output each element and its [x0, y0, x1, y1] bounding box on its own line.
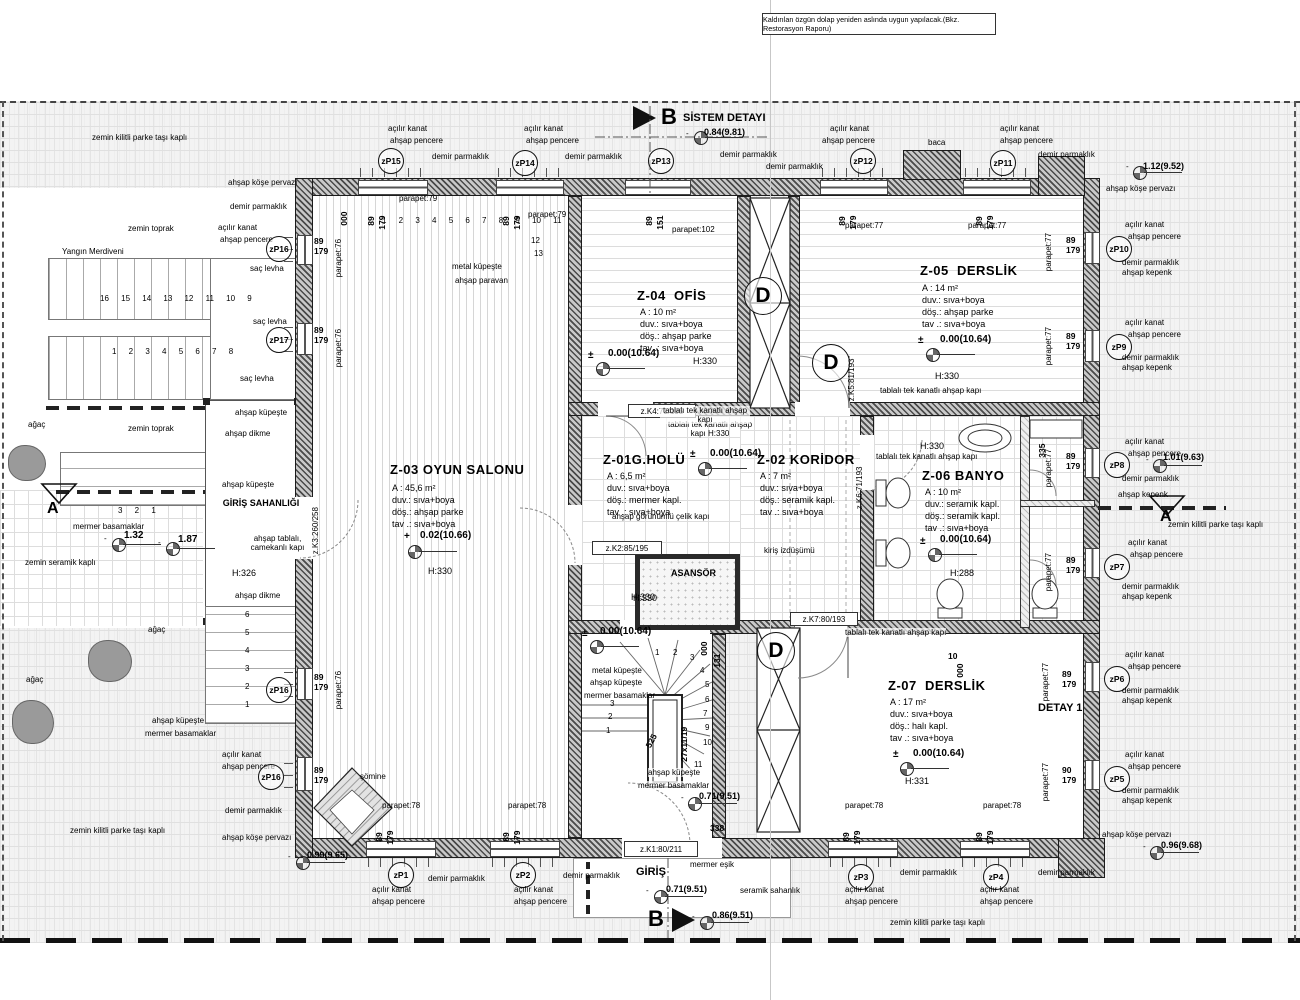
stair-num: 9: [705, 723, 709, 732]
minus-sign: -: [646, 886, 649, 895]
revision-note: Kaldırılan özgün dolap yeniden aslında u…: [762, 13, 996, 35]
window-tag-zP14: zP14: [512, 150, 538, 176]
label-somine: şömine: [360, 772, 386, 781]
stair-level: 0.00(10.64): [600, 626, 651, 638]
dim-parapet78: parapet:78: [983, 801, 1021, 810]
label-ahsap-dikme: ahşap dikme: [225, 429, 270, 438]
label-acilir-kanat: açılır kanat: [222, 750, 261, 759]
window-zP17: [297, 323, 313, 355]
tree-blob: [88, 640, 132, 682]
room-area: A : 45,6 m²: [392, 482, 464, 494]
room-z02-id: Z-02: [757, 452, 786, 467]
label-yangin-merdiveni: Yangın Merdiveni: [62, 247, 124, 256]
room-area: A : 7 m²: [760, 470, 835, 482]
floor-plan-canvas: Kaldırılan özgün dolap yeniden aslında u…: [0, 0, 1300, 1000]
label-demir-parmaklik: demir parmaklık: [1122, 582, 1179, 591]
label-tablali-kapi: tablalı tek kanatlı ahşap kapı: [845, 628, 946, 637]
label-ahsap-kepenk: ahşap kepenk: [1122, 696, 1172, 705]
dim-parapet77: parapet:77: [1041, 663, 1050, 701]
tag-text: zP14: [515, 158, 534, 168]
stair-side-num: 3: [610, 699, 614, 708]
label-ahsap-pencere: ahşap pencere: [1128, 330, 1181, 339]
room-z05-name: DERSLİK: [957, 263, 1018, 278]
tag-text: zP3: [854, 872, 869, 882]
dim-parapet78: parapet:78: [508, 801, 546, 810]
window-zP16-c: [297, 757, 313, 791]
room-area: A : 14 m²: [922, 282, 994, 294]
window-tag-zP12: zP12: [850, 148, 876, 174]
window-zP10: [1085, 232, 1100, 264]
room-z01-name: G.HOLÜ: [632, 452, 686, 467]
room-z06-height: H:288: [950, 568, 974, 578]
room-z04-id: Z-04: [637, 288, 666, 303]
room-z06-level: 0.00(10.64): [940, 534, 991, 546]
minus-sign: -: [288, 852, 291, 861]
detail-1-label: DETAY 1: [1038, 702, 1082, 715]
window-tag-zP17: zP17: [266, 327, 292, 353]
label-demir-parmaklik: demir parmaklık: [230, 202, 287, 211]
room-z03-height: H:330: [428, 566, 452, 576]
room-z04-level: 0.00(10.64): [608, 348, 659, 360]
label-acilir-kanat: açılır kanat: [830, 124, 869, 133]
tag-text: zP17: [269, 335, 288, 345]
tag-text: zP8: [1110, 460, 1125, 470]
room-z02-name: KORİDOR: [790, 452, 855, 467]
minus-sign: -: [692, 912, 695, 921]
dim-179: 179: [1062, 776, 1076, 786]
tag-text: zP4: [989, 872, 1004, 882]
door-text: z.K1:80/211: [640, 845, 682, 854]
window-tag-zP16: zP16: [266, 677, 292, 703]
label-mermer-basamaklar: mermer basamaklar: [638, 781, 709, 790]
window-zP1: [366, 841, 436, 857]
label-acilir-kanat: açılır kanat: [218, 223, 257, 232]
fire-escape-numbers-top: 16 15 14 13 12 11 10 9: [100, 294, 240, 303]
tag-text: zP7: [1110, 562, 1125, 572]
label-ahsap-pencere: ahşap pencere: [390, 136, 443, 145]
room-z05-height: H:330: [935, 371, 959, 381]
stair-num: 1: [655, 648, 659, 657]
label-ahsap-pencere: ahşap pencere: [1130, 550, 1183, 559]
dim-parapet79: parapet:79: [399, 194, 437, 203]
room-z07-height: H:331: [905, 776, 929, 786]
label-demir-parmaklik: demir parmaklık: [225, 806, 282, 815]
label-demir-parmaklik: demir parmaklık: [1122, 686, 1179, 695]
level-symbol: [590, 640, 604, 654]
window-zP11: [963, 180, 1031, 195]
room-z01-id: Z-01: [603, 452, 632, 467]
z03-num-13: 13: [534, 249, 543, 258]
level-071-stair: 0.71(9.51): [699, 791, 740, 801]
label-acilir-kanat: açılır kanat: [524, 124, 563, 133]
dim-parapet76: parapet:76: [334, 329, 343, 367]
stair-num: 6: [705, 695, 709, 704]
room-z05-id: Z-05: [920, 263, 949, 278]
dim-parapet78: parapet:78: [845, 801, 883, 810]
dim-parapet77: parapet:77: [1044, 233, 1053, 271]
window-tag-zP13: zP13: [648, 148, 674, 174]
label-ahsap-pencere: ahşap pencere: [1128, 232, 1181, 241]
level-101: 1.01(9.63): [1163, 452, 1204, 462]
label-agac: ağaç: [26, 675, 43, 684]
room-duv: duv.: sıva+boya: [392, 494, 464, 506]
dim-179: 179: [1066, 462, 1080, 472]
tag-text: zP16: [269, 685, 288, 695]
window-zP9: [1085, 330, 1100, 362]
window-zP7: [1085, 548, 1100, 578]
label-metal-kupeste: metal küpeşte: [452, 262, 502, 271]
fire-escape-numbers-bottom: 1 2 3 4 5 6 7 8: [112, 347, 240, 356]
fire-escape-upper-flight: [48, 258, 212, 320]
boundary-bottom-dashed: [0, 938, 1300, 943]
window-zP8: [1085, 448, 1100, 478]
room-tav: tav .: sıva+boya: [392, 518, 464, 530]
dim-parapet102: parapet:102: [672, 225, 715, 234]
dim-parapet77: parapet:77: [845, 221, 883, 230]
tag-text: zP16: [269, 244, 288, 254]
dim-338: 338: [710, 824, 724, 834]
room-z06-name: BANYO: [955, 468, 1004, 483]
dim-89: 89: [502, 832, 512, 841]
level-096: 0.96(9.68): [1161, 840, 1202, 850]
label-agac: ağaç: [148, 625, 165, 634]
window-tag-zP11: zP11: [990, 150, 1016, 176]
level-symbol: [408, 545, 422, 559]
label-zemin-toprak: zemin toprak: [128, 224, 174, 233]
label-seramik-sahanlik: seramik sahanlık: [740, 886, 800, 895]
level-symbol: [900, 762, 914, 776]
tag-text: zP10: [1109, 244, 1128, 254]
room-area: A : 10 m²: [925, 486, 1000, 498]
label-acilir-kanat: açılır kanat: [845, 885, 884, 894]
dim-335: 335: [1038, 444, 1048, 458]
dim-179: 179: [314, 247, 328, 257]
level-084: 0.84(9.81): [704, 127, 745, 137]
label-zemin-seramik: zemin seramik kaplı: [25, 558, 96, 567]
section-b-top-label: B: [661, 104, 677, 129]
label-tablali-kapi: tablalı tek kanatlı ahşap kapı: [880, 386, 981, 395]
dim-89: 89: [375, 832, 385, 841]
dim-179: 179: [1066, 566, 1080, 576]
label-ahsap-pencere: ahşap pencere: [372, 897, 425, 906]
tag-text: zP13: [651, 156, 670, 166]
label-metal-kupeste: metal küpeşte: [592, 666, 642, 675]
tag-text: zP15: [381, 156, 400, 166]
room-tav: tav .: sıva+boya: [922, 318, 994, 330]
dim-179: 179: [513, 831, 523, 845]
door-text: z.K7:80/193: [803, 615, 846, 624]
room-z04-name: OFİS: [674, 288, 706, 303]
ext-stair-num: 2: [245, 682, 249, 691]
room-z03-info: A : 45,6 m² duv.: sıva+boya döş.: ahşap …: [392, 482, 464, 531]
stair-num: 5: [705, 680, 709, 689]
room-z07-level: 0.00(10.64): [913, 748, 964, 760]
label-ahsap-kepenk: ahşap kepenk: [1118, 490, 1168, 499]
level-symbol: [596, 362, 610, 376]
label-tablali-kapi: tablalı tek kanatlı ahşap kapı: [876, 452, 977, 461]
label-agac: ağaç: [28, 420, 45, 429]
label-acilir-kanat: açılır kanat: [1000, 124, 1039, 133]
label-acilir-kanat: açılır kanat: [1125, 220, 1164, 229]
door-label-k2: z.K2:85/195: [592, 541, 662, 555]
label-kose-pervazi: ahşap köşe pervazı: [1102, 830, 1171, 839]
room-tav: tav .: sıva+boya: [760, 506, 835, 518]
dim-h330: H:330: [631, 592, 655, 602]
tag-text: zP1: [394, 870, 409, 880]
door-label-k6: z.K6:71/193: [855, 466, 864, 509]
label-tablali-kapi-top: tablalı tek kanatlı ahşap kapı: [660, 406, 750, 424]
ext-stair-num: 5: [245, 628, 249, 637]
window-tag-zP16: zP16: [258, 764, 284, 790]
tag-text: zP16: [261, 772, 280, 782]
tag-text: zP12: [853, 156, 872, 166]
label-acilir-kanat: açılır kanat: [1125, 750, 1164, 759]
label-kose-pervazi: ahşap köşe pervazı: [228, 178, 297, 187]
level-112: 1.12(9.52): [1143, 161, 1184, 171]
room-duv: duv.: sıva+boya: [640, 318, 712, 330]
label-ahsap-kupeste: ahşap küpeşte: [152, 716, 204, 725]
dim-179: 179: [1062, 680, 1076, 690]
tag-text: zP5: [1110, 774, 1125, 784]
room-duv: duv.: sıva+boya: [607, 482, 682, 494]
dim-parapet76: parapet:76: [334, 239, 343, 277]
room-z02-info: A : 7 m² duv.: sıva+boya döş.: seramik k…: [760, 470, 835, 519]
level-sign: ±: [918, 335, 924, 347]
door-gap-k2: [568, 505, 582, 565]
minus-sign: -: [686, 129, 689, 138]
level-132: 1.32: [124, 530, 143, 542]
dim-179: 179: [314, 683, 328, 693]
label-ahsap-kepenk: ahşap kepenk: [1122, 268, 1172, 277]
label-ahsap-pencere: ahşap pencere: [822, 136, 875, 145]
z03-num-12: 12: [531, 236, 540, 245]
dim-parapet77: parapet:77: [1044, 553, 1053, 591]
label-mermer-basamaklar: mermer basamaklar: [145, 729, 216, 738]
label-acilir-kanat: açılır kanat: [1125, 650, 1164, 659]
minus-sign: -: [104, 534, 107, 543]
wall-shaft-east: [788, 196, 800, 412]
boundary-right-dashed: [1294, 101, 1296, 941]
porch-step-numbers: 3 2 1: [118, 506, 162, 515]
label-kose-pervazi: ahşap köşe pervazı: [222, 833, 291, 842]
dim-151: 151: [656, 216, 666, 230]
dim-h330: H:330: [920, 441, 944, 451]
dim-000: 000: [956, 664, 966, 678]
dim-10: 10: [948, 652, 957, 662]
label-demir-parmaklik: demir parmaklık: [563, 871, 620, 880]
dim-179: 179: [1066, 246, 1080, 256]
label-ahsap-kepenk: ahşap kepenk: [1122, 363, 1172, 372]
dim-step: 27x11/19: [680, 727, 690, 762]
room-z03-name: OYUN SALONU: [423, 462, 525, 477]
wall-right: [1083, 178, 1100, 858]
label-zemin-kilitli: zemin kilitli parke taşı kaplı: [92, 133, 187, 142]
room-duv: duv.: seramik kapl.: [925, 498, 1000, 510]
stair-side-num: 1: [606, 726, 610, 735]
tag-text: zP6: [1110, 674, 1125, 684]
label-kose-pervazi: ahşap köşe pervazı: [1106, 184, 1175, 193]
room-duv: duv.: sıva+boya: [760, 482, 835, 494]
minus-sign: -: [681, 793, 684, 802]
label-demir-parmaklik: demir parmaklık: [766, 162, 823, 171]
label-ahsap-pencere: ahşap pencere: [1128, 762, 1181, 771]
label-zemin-kilitli: zemin kilitli parke taşı kaplı: [70, 826, 165, 835]
room-z07-id: Z-07: [888, 678, 917, 693]
door-label-k7: z.K7:80/193: [790, 612, 858, 626]
label-demir-parmaklik: demir parmaklık: [720, 150, 777, 159]
label-demir-parmaklik: demir parmaklık: [565, 152, 622, 161]
boundary-left-dashed: [2, 101, 4, 941]
label-acilir-kanat: açılır kanat: [1128, 538, 1167, 547]
level-sign: ±: [690, 449, 696, 461]
level-099: 0.99(9.65): [307, 850, 348, 860]
label-zemin-kilitli: zemin kilitli parke taşı kaplı: [890, 918, 985, 927]
shaft-symbol-d: D: [812, 344, 850, 382]
ext-stair-num: 6: [245, 610, 249, 619]
dim-parapet78: parapet:78: [382, 801, 420, 810]
level-symbol: [928, 548, 942, 562]
section-a-left-label: A: [47, 500, 59, 518]
minus-sign: -: [1126, 162, 1129, 171]
banyo-partition-h: [1020, 500, 1095, 507]
stair-num: 10: [703, 738, 712, 747]
shaft-symbol-d: D: [757, 632, 795, 670]
dim-179: 179: [386, 831, 396, 845]
porch-post: [203, 398, 210, 405]
room-z01-level: 0.00(10.64): [710, 448, 761, 460]
chimney: [903, 150, 961, 180]
label-acilir-kanat: açılır kanat: [372, 885, 411, 894]
tag-text: zP9: [1112, 342, 1127, 352]
label-ahsap-dikme: ahşap dikme: [235, 591, 280, 600]
dim-parapet77: parapet:77: [1044, 327, 1053, 365]
level-sign: ±: [893, 749, 899, 761]
window-zP14: [496, 180, 564, 195]
system-detail-label: SİSTEM DETAYI: [683, 112, 766, 125]
room-duv: duv.: sıva+boya: [890, 708, 953, 720]
label-demir-parmaklik: demir parmaklık: [1122, 786, 1179, 795]
window-zP3: [828, 841, 898, 857]
tree-blob: [12, 700, 54, 744]
label-text: tablalı tek kanatlı ahşap kapı: [663, 406, 747, 424]
dim-131: 131: [713, 654, 723, 668]
minus-sign: -: [1143, 842, 1146, 851]
label-demir-parmaklik: demir parmaklık: [1122, 474, 1179, 483]
revision-note-text: Kaldırılan özgün dolap yeniden aslında u…: [763, 15, 995, 33]
label-kiris-izdusumu: kiriş izdüşümü: [764, 546, 815, 555]
room-dos: döş.: seramik kapl.: [925, 510, 1000, 522]
room-z03-level: 0.02(10.66): [420, 530, 471, 542]
room-tav: tav .: sıva+boya: [925, 522, 1000, 534]
door-gap-k5: [795, 402, 850, 416]
dim-parapet76: parapet:76: [334, 671, 343, 709]
section-b-bottom-label: B: [648, 906, 664, 931]
entrance-label: GİRİŞ: [636, 866, 666, 879]
corner-projection-ne: [1038, 156, 1085, 196]
stair-num: 7: [703, 709, 707, 718]
window-tag-zP7: zP7: [1104, 554, 1130, 580]
window-zP15: [358, 180, 428, 195]
room-z07-name: DERSLİK: [925, 678, 986, 693]
dim-parapet77: parapet:77: [968, 221, 1006, 230]
room-z06-info: A : 10 m² duv.: seramik kapl. döş.: sera…: [925, 486, 1000, 535]
dim-179: 179: [986, 831, 996, 845]
room-area: A : 6,5 m²: [607, 470, 682, 482]
room-z04-height: H:330: [693, 356, 717, 366]
label-zemin-kilitli: zemin kilitli parke taşı kaplı: [1168, 520, 1263, 529]
window-zP5: [1085, 760, 1100, 790]
room-z05-info: A : 14 m² duv.: sıva+boya döş.: ahşap pa…: [922, 282, 994, 331]
label-ahsap-kupeste: ahşap küpeşte: [590, 678, 642, 687]
room-z05-level: 0.00(10.64): [940, 334, 991, 346]
label-demir-parmaklik: demir parmaklık: [1122, 353, 1179, 362]
label-mermer-esik: mermer eşik: [690, 860, 734, 869]
z03-top-numbers: 1 2 3 4 5 6 7 8 9 10 11: [382, 216, 532, 225]
minus-sign: -: [158, 538, 161, 547]
window-zP2: [490, 841, 560, 857]
label-acilir-kanat: açılır kanat: [388, 124, 427, 133]
label-demir-parmaklik: demir parmaklık: [900, 868, 957, 877]
level-187: 1.87: [178, 534, 197, 546]
window-zP13: [625, 180, 691, 195]
label-acilir-kanat: açılır kanat: [1125, 437, 1164, 446]
dim-179: 179: [853, 831, 863, 845]
label-ahsap-kupeste: ahşap küpeşte: [648, 768, 700, 777]
room-area: A : 10 m²: [640, 306, 712, 318]
room-area: A : 17 m²: [890, 696, 953, 708]
room-dos: döş.: seramik kapl.: [760, 494, 835, 506]
door-label-k1: z.K1:80/211: [624, 841, 698, 857]
label-sac-levha: saç levha: [240, 374, 274, 383]
label-acilir-kanat: açılır kanat: [980, 885, 1019, 894]
stair-num: 2: [673, 648, 677, 657]
ext-stair-num: 3: [245, 664, 249, 673]
label-demir-parmaklik: demir parmaklık: [432, 152, 489, 161]
room-duv: duv.: sıva+boya: [922, 294, 994, 306]
dim-179: 179: [314, 776, 328, 786]
label-acilir-kanat: açılır kanat: [1125, 318, 1164, 327]
exterior-stair: [205, 606, 303, 724]
label-ahsap-pencere: ahşap pencere: [1000, 136, 1053, 145]
label-camekanli-kapi: ahşap tablalı, camekanlı kapı: [235, 534, 320, 552]
stair-side-num: 2: [608, 712, 612, 721]
room-dos: döş.: halı kapl.: [890, 720, 953, 732]
label-acilir-kanat: açılır kanat: [514, 885, 553, 894]
window-zP12: [820, 180, 888, 195]
label-sac-levha: saç levha: [253, 317, 287, 326]
porch-title: GİRİŞ SAHANLIĞI: [222, 498, 300, 508]
dim-h326: H:326: [232, 568, 256, 578]
label-demir-parmaklik: demir parmaklık: [1038, 150, 1095, 159]
label-demir-parmaklik: demir parmaklık: [1122, 258, 1179, 267]
ext-stair-num: 4: [245, 646, 249, 655]
label-ahsap-pencere: ahşap pencere: [1128, 662, 1181, 671]
window-zP16-a: [297, 235, 313, 265]
label-zemin-toprak: zemin toprak: [128, 424, 174, 433]
tag-text: zP11: [994, 158, 1013, 168]
tree-blob: [8, 445, 46, 481]
label-ahsap-pencere: ahşap pencere: [980, 897, 1033, 906]
room-z03-id: Z-03: [390, 462, 419, 477]
banyo-partition-v: [1020, 416, 1030, 628]
dim-89: 89: [645, 216, 655, 225]
label-ahsap-pencere: ahşap pencere: [526, 136, 579, 145]
room-dos: döş.: ahşap parke: [640, 330, 712, 342]
door-text: z.K2:85/195: [606, 544, 649, 553]
label-baca: baca: [928, 138, 945, 147]
dim-89: 89: [975, 832, 985, 841]
label-sac-levha: saç levha: [250, 264, 284, 273]
